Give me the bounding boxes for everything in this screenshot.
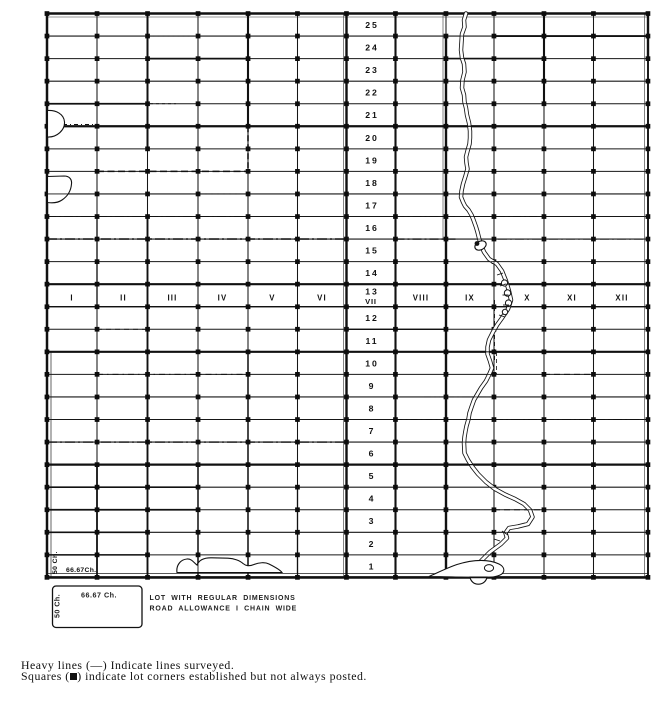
svg-text:9: 9: [369, 381, 376, 391]
svg-text:IV: IV: [218, 293, 228, 302]
svg-text:23: 23: [365, 65, 378, 75]
svg-text:16: 16: [365, 223, 378, 233]
svg-text:VIII: VIII: [413, 293, 430, 302]
svg-text:2: 2: [369, 539, 376, 549]
svg-text:66.67 Ch.: 66.67 Ch.: [81, 591, 117, 600]
svg-text:IX: IX: [465, 293, 475, 302]
svg-text:III: III: [167, 293, 177, 302]
svg-text:VII: VII: [365, 297, 377, 306]
svg-text:10: 10: [365, 358, 378, 368]
svg-text:24: 24: [365, 43, 378, 53]
svg-text:20: 20: [365, 133, 378, 143]
svg-text:6: 6: [369, 449, 376, 459]
svg-text:7: 7: [369, 426, 376, 436]
svg-text:50 Ch.: 50 Ch.: [53, 594, 62, 618]
svg-text:5: 5: [369, 471, 376, 481]
svg-text:12: 12: [365, 313, 378, 323]
svg-text:22: 22: [365, 88, 378, 98]
svg-text:3: 3: [369, 516, 376, 526]
svg-text:50 Ch.: 50 Ch.: [52, 551, 59, 574]
svg-text:VI: VI: [317, 293, 327, 302]
svg-text:I: I: [70, 293, 73, 302]
svg-text:XII: XII: [615, 293, 628, 302]
svg-text:15: 15: [365, 246, 378, 256]
svg-text:17: 17: [365, 200, 378, 210]
svg-text:14: 14: [365, 268, 378, 278]
svg-text:1: 1: [369, 561, 376, 571]
svg-text:4: 4: [369, 494, 376, 504]
svg-text:13: 13: [365, 286, 378, 296]
svg-text:V: V: [269, 293, 275, 302]
svg-text:X: X: [524, 293, 530, 302]
svg-text:XI: XI: [567, 293, 577, 302]
svg-text:8: 8: [369, 403, 376, 413]
svg-text:21: 21: [365, 110, 378, 120]
svg-text:II: II: [120, 293, 127, 302]
svg-text:25: 25: [365, 20, 378, 30]
svg-text:ROAD ALLOWANCE I CHAIN WIDE: ROAD ALLOWANCE I CHAIN WIDE: [150, 606, 298, 613]
svg-text:LOT WITH REGULAR DIMENSIONS: LOT WITH REGULAR DIMENSIONS: [150, 595, 296, 602]
svg-text:18: 18: [365, 178, 378, 188]
svg-text:66.67Ch.: 66.67Ch.: [66, 567, 96, 574]
svg-text:11: 11: [366, 336, 379, 346]
svg-text:19: 19: [365, 155, 378, 165]
